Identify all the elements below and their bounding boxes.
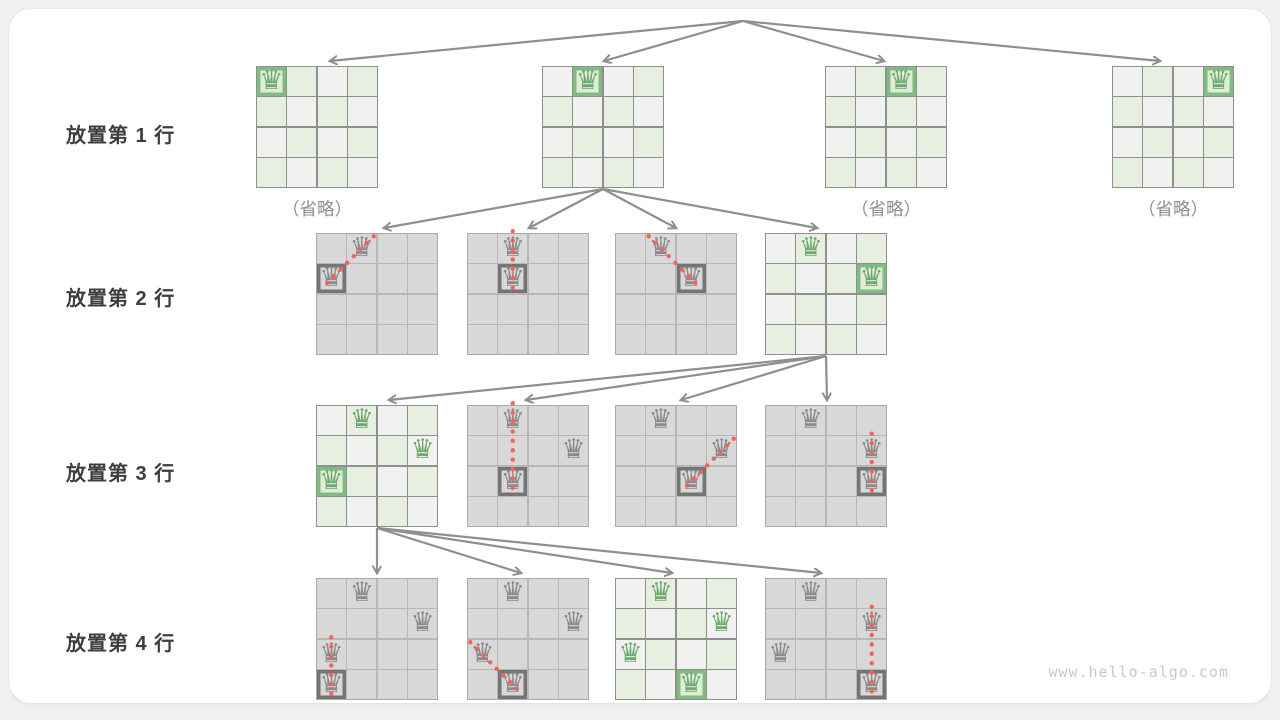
queen-icon: ♛ [859,436,883,463]
board-cell [796,640,825,669]
board-cell [408,325,437,354]
board-cell [347,609,376,638]
board-cell [468,497,497,526]
board-cell [348,67,377,96]
board-cell [827,325,856,354]
board-cell [408,467,437,496]
board-cell [917,97,946,126]
board-cell [827,234,856,263]
board-cell [468,325,497,354]
board-r2b1: ♛♛ [316,233,438,355]
board-cell [257,128,286,157]
board-cell: ♛ [468,640,497,669]
board-cell: ♛ [408,609,437,638]
board-cell [559,295,588,324]
board-cell [827,609,856,638]
board-cell: ♛ [347,234,376,263]
board-cell [616,579,645,608]
board-r4b2: ♛♛♛♛ [467,578,589,700]
board-cell [468,609,497,638]
watermark: www.hello-algo.com [1048,663,1229,681]
board-cell [857,325,886,354]
queen-icon: ♛ [319,264,343,291]
board-cell [347,325,376,354]
board-cell [677,579,706,608]
board-cell [317,497,346,526]
board-cell [616,497,645,526]
board-cell: ♛ [317,264,346,293]
board-cell [677,640,706,669]
board-cell [408,497,437,526]
board-cell [378,406,407,435]
board-cell [707,467,736,496]
board-cell [529,264,558,293]
queen-icon: ♛ [799,579,823,606]
board-cell [856,128,885,157]
board-cell [917,158,946,187]
queen-icon: ♛ [859,670,883,697]
board-cell [887,158,916,187]
board-cell [616,436,645,465]
board-r3b4: ♛♛♛ [765,405,887,527]
board-cell [468,436,497,465]
board-cell [857,295,886,324]
board-cell [257,158,286,187]
board-cell [317,609,346,638]
board-cell: ♛ [498,579,527,608]
board-cell [646,497,675,526]
board-cell [378,670,407,699]
board-cell [646,436,675,465]
board-cell [468,234,497,263]
board-r3b2: ♛♛♛ [467,405,589,527]
queen-icon: ♛ [350,406,374,433]
board-cell [559,579,588,608]
board-cell [677,436,706,465]
diagram-canvas: 放置第 1 行 放置第 2 行 放置第 3 行 放置第 4 行 ♛（省略）♛♛（… [9,9,1271,703]
board-cell [559,325,588,354]
board-cell [796,467,825,496]
board-cell [287,97,316,126]
row-label-1: 放置第 1 行 [66,122,175,150]
queen-icon: ♛ [501,406,525,433]
board-cell [559,406,588,435]
board-cell [616,234,645,263]
board-cell [468,406,497,435]
board-cell [604,97,633,126]
board-cell [677,325,706,354]
board-cell [348,128,377,157]
board-cell [287,158,316,187]
board-cell: ♛ [677,264,706,293]
board-cell [347,436,376,465]
board-cell [347,670,376,699]
board-cell [408,234,437,263]
board-cell [498,497,527,526]
board-cell [543,128,572,157]
queen-icon: ♛ [649,406,673,433]
board-cell [707,264,736,293]
board-cell: ♛ [677,670,706,699]
board-cell [529,609,558,638]
board-cell [529,295,558,324]
board-cell [573,128,602,157]
board-cell [347,640,376,669]
queen-icon: ♛ [410,436,434,463]
board-cell [287,67,316,96]
board-cell [827,579,856,608]
board-r3b3: ♛♛♛ [615,405,737,527]
board-cell [677,609,706,638]
board-cell: ♛ [796,234,825,263]
board-cell: ♛ [646,406,675,435]
board-cell [857,497,886,526]
board-cell [378,497,407,526]
board-cell [677,497,706,526]
row-label-4: 放置第 4 行 [66,630,175,658]
board-cell [378,640,407,669]
board-cell [529,467,558,496]
board-cell: ♛ [766,640,795,669]
queen-icon: ♛ [859,609,883,636]
board-cell [707,295,736,324]
queen-icon: ♛ [501,264,525,291]
board-cell [796,325,825,354]
queen-icon: ♛ [501,234,525,261]
board-cell [1204,128,1233,157]
board-cell [529,325,558,354]
board-cell [766,325,795,354]
board-cell: ♛ [857,436,886,465]
board-r4b1: ♛♛♛♛ [316,578,438,700]
board-cell [468,467,497,496]
board-cell [646,640,675,669]
board-cell [1174,67,1203,96]
board-cell: ♛ [317,640,346,669]
board-cell [796,609,825,638]
board-cell: ♛ [498,670,527,699]
board-cell [707,406,736,435]
board-cell [317,325,346,354]
board-r3b1: ♛♛♛ [316,405,438,527]
queen-icon: ♛ [319,467,343,494]
board-cell [646,295,675,324]
queen-icon: ♛ [649,234,673,261]
board-r1b3: ♛ [825,66,947,188]
board-cell [646,609,675,638]
omitted-label: （省略） [795,196,977,221]
board-cell [827,497,856,526]
board-cell [573,158,602,187]
board-cell [317,295,346,324]
board-cell: ♛ [498,234,527,263]
board-cell [468,579,497,608]
board-cell [796,436,825,465]
board-cell [917,128,946,157]
queen-icon: ♛ [410,609,434,636]
board-cell [318,67,347,96]
board-cell [766,497,795,526]
board-cell [317,579,346,608]
board-cell [543,67,572,96]
queen-icon: ♛ [259,67,283,94]
board-cell [378,325,407,354]
board-cell [766,234,795,263]
board-cell [827,670,856,699]
queen-icon: ♛ [649,579,673,606]
board-cell [796,295,825,324]
board-cell: ♛ [347,579,376,608]
queen-icon: ♛ [576,67,600,94]
row-label-2: 放置第 2 行 [66,285,175,313]
queen-icon: ♛ [561,609,585,636]
board-cell [826,97,855,126]
board-cell [1204,158,1233,187]
row-label-3: 放置第 3 行 [66,460,175,488]
board-cell [347,467,376,496]
board-cell [827,406,856,435]
board-cell [378,467,407,496]
queen-icon: ♛ [709,436,733,463]
board-r2b2: ♛♛ [467,233,589,355]
queen-icon: ♛ [501,467,525,494]
board-cell: ♛ [573,67,602,96]
board-cell: ♛ [408,436,437,465]
board-cell [857,640,886,669]
board-cell [529,436,558,465]
queen-icon: ♛ [799,406,823,433]
board-cell [348,97,377,126]
queen-icon: ♛ [618,640,642,667]
board-cell: ♛ [317,670,346,699]
board-cell: ♛ [796,406,825,435]
board-cell [856,97,885,126]
board-cell: ♛ [857,670,886,699]
board-cell [559,640,588,669]
board-cell: ♛ [347,406,376,435]
board-cell [634,97,663,126]
board-cell [378,295,407,324]
board-cell [1204,97,1233,126]
board-cell: ♛ [887,67,916,96]
board-cell: ♛ [857,264,886,293]
board-cell: ♛ [707,436,736,465]
board-cell [347,264,376,293]
queen-icon: ♛ [561,436,585,463]
board-cell [529,640,558,669]
board-cell [1174,97,1203,126]
board-cell: ♛ [257,67,286,96]
queen-icon: ♛ [501,579,525,606]
board-cell [468,670,497,699]
board-cell [616,467,645,496]
board-cell [529,670,558,699]
board-cell [408,640,437,669]
board-cell [766,579,795,608]
board-cell [317,436,346,465]
board-cell [1143,128,1172,157]
board-cell [498,640,527,669]
board-cell [573,97,602,126]
board-r4b4: ♛♛♛♛ [765,578,887,700]
board-cell [826,128,855,157]
board-cell [529,497,558,526]
board-cell [1113,97,1142,126]
board-cell [677,295,706,324]
queen-icon: ♛ [889,67,913,94]
board-cell [468,264,497,293]
board-cell [318,97,347,126]
board-cell [1143,97,1172,126]
queen-icon: ♛ [859,264,883,291]
board-cell [766,264,795,293]
board-cell [616,295,645,324]
board-cell [917,67,946,96]
board-cell: ♛ [498,406,527,435]
board-cell [408,579,437,608]
board-cell: ♛ [796,579,825,608]
board-cell: ♛ [1204,67,1233,96]
board-r4b3: ♛♛♛♛ [615,578,737,700]
board-cell: ♛ [677,467,706,496]
board-cell [707,579,736,608]
queen-icon: ♛ [709,609,733,636]
queen-icon: ♛ [799,234,823,261]
board-cell [529,234,558,263]
board-cell [616,264,645,293]
board-cell [257,97,286,126]
queen-icon: ♛ [859,467,883,494]
board-cell [766,609,795,638]
board-cell [1174,158,1203,187]
board-cell: ♛ [646,579,675,608]
board-cell [378,579,407,608]
board-cell [827,467,856,496]
board-cell [318,158,347,187]
board-cell [1143,158,1172,187]
board-cell [348,158,377,187]
board-cell [378,609,407,638]
board-cell [287,128,316,157]
queen-icon: ♛ [350,234,374,261]
board-cell [646,670,675,699]
board-cell [634,158,663,187]
board-cell [766,406,795,435]
board-cell: ♛ [559,436,588,465]
board-cell [408,406,437,435]
board-cell [604,67,633,96]
board-cell [378,234,407,263]
omitted-label: （省略） [1082,196,1264,221]
board-cell [856,67,885,96]
board-cell [529,579,558,608]
board-cell [1113,67,1142,96]
board-r1b4: ♛ [1112,66,1234,188]
board-cell [604,128,633,157]
board-cell [796,670,825,699]
board-cell [646,264,675,293]
queen-icon: ♛ [1206,67,1230,94]
board-cell [634,67,663,96]
board-cell [707,640,736,669]
board-cell [707,234,736,263]
board-cell [347,295,376,324]
queen-icon: ♛ [350,579,374,606]
board-cell [1113,158,1142,187]
board-cell [543,158,572,187]
queen-icon: ♛ [768,640,792,667]
board-cell: ♛ [857,467,886,496]
board-cell [1174,128,1203,157]
board-cell [616,325,645,354]
board-cell [826,158,855,187]
board-cell [498,609,527,638]
board-cell [887,97,916,126]
board-cell [796,497,825,526]
queen-icon: ♛ [679,670,703,697]
board-cell [766,295,795,324]
board-cell [857,579,886,608]
board-cell [707,497,736,526]
board-cell [707,325,736,354]
board-cell [677,406,706,435]
board-cell [408,670,437,699]
board-cell [559,264,588,293]
board-cell [826,67,855,96]
board-cell [796,264,825,293]
board-cell [378,436,407,465]
board-cell [408,295,437,324]
board-cell [559,467,588,496]
board-cell [827,295,856,324]
board-cell: ♛ [646,234,675,263]
board-cell [347,497,376,526]
board-cell [857,406,886,435]
board-cell [646,325,675,354]
board-r1b1: ♛ [256,66,378,188]
board-cell [604,158,633,187]
board-cell [559,670,588,699]
board-cell [616,609,645,638]
queen-icon: ♛ [470,640,494,667]
board-cell [616,670,645,699]
board-cell [498,436,527,465]
board-cell [408,264,437,293]
board-cell [856,158,885,187]
board-cell: ♛ [707,609,736,638]
board-cell [646,467,675,496]
board-r2b3: ♛♛ [615,233,737,355]
board-cell [318,128,347,157]
board-cell: ♛ [317,467,346,496]
board-cell [317,234,346,263]
board-r2b4: ♛♛ [765,233,887,355]
board-cell [677,234,706,263]
board-cell [766,670,795,699]
queen-icon: ♛ [319,640,343,667]
board-cell [766,436,795,465]
queen-icon: ♛ [679,467,703,494]
omitted-label: （省略） [226,196,408,221]
board-cell [559,497,588,526]
board-cell [707,670,736,699]
board-cell [616,406,645,435]
board-cell [857,234,886,263]
board-cell [827,640,856,669]
board-cell [827,264,856,293]
board-cell [543,97,572,126]
board-cell [317,406,346,435]
